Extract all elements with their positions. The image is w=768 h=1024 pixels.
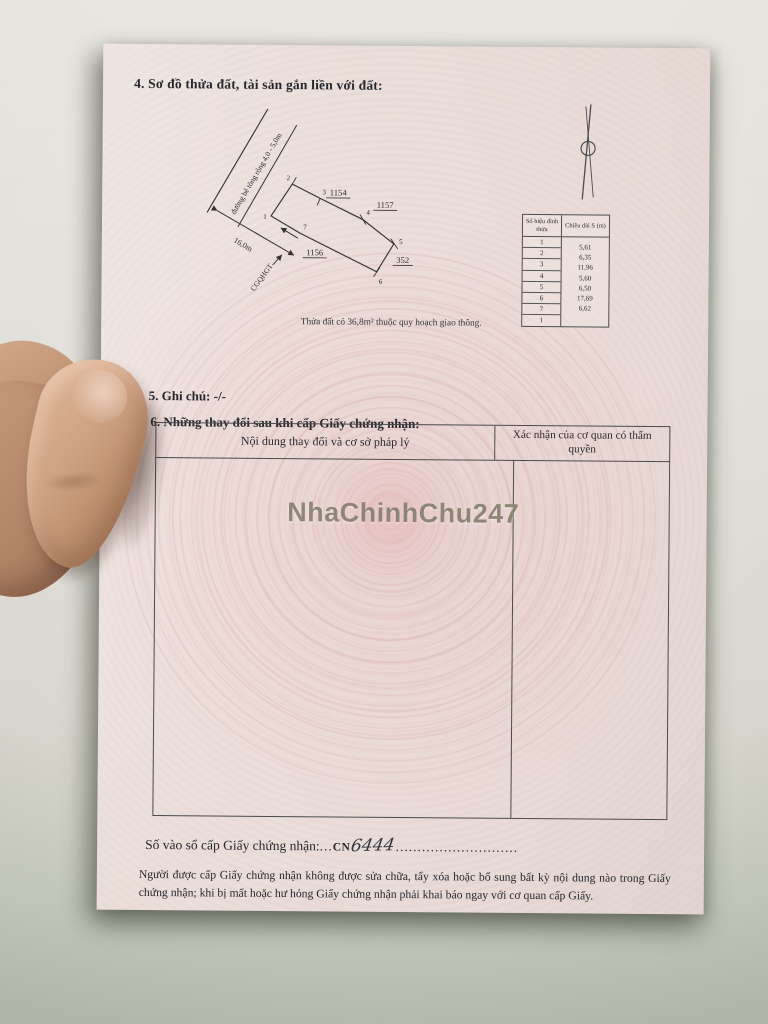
changes-col1-header: Nội dung thay đổi và cơ sở pháp lý [156, 423, 495, 460]
road-label: đường bê tông rộng 4,0 - 5,0m [229, 131, 284, 216]
registry-handwritten-number: 6444 [350, 835, 396, 856]
planning-boundary-arrow [273, 255, 282, 265]
certificate-page: 4. Sơ đồ thửa đất, tài sản gắn liền với … [97, 44, 711, 915]
registry-prefix: CN [333, 841, 351, 853]
length-cell: 5,60 [562, 273, 609, 284]
changes-table: Nội dung thay đổi và cơ sở pháp lý Xác n… [152, 422, 670, 820]
vertex-4: 4 [366, 209, 370, 217]
vertex-1: 1 [263, 213, 267, 221]
footer-warning-text: Người được cấp Giấy chứng nhận không đượ… [139, 866, 671, 906]
vertex-7: 7 [303, 223, 307, 231]
dimension-label: 16,0m [232, 236, 255, 254]
dimension-line [217, 211, 294, 256]
vertex-cell: 3 [523, 259, 561, 270]
plot-diagram: đường bê tông rộng 4,0 - 5,0m 16,0m CGQH… [171, 106, 533, 344]
vertex-cell: 6 [522, 293, 560, 304]
vertex-6: 6 [379, 278, 383, 286]
registry-dots: ... [320, 838, 333, 853]
vertex-5: 5 [399, 238, 403, 246]
length-cell: 17,69 [561, 293, 608, 304]
section4-title: 4. Sơ đồ thửa đất, tài sản gắn liền với … [134, 76, 383, 94]
planning-boundary-label: CGQHGT [249, 262, 275, 293]
vertex-cell: 7 [522, 304, 560, 315]
registry-number-line: Số vào sổ cấp Giấy chứng nhận:...CN6444.… [145, 834, 518, 857]
vertex-3: 3 [322, 188, 326, 196]
vertex-2: 2 [287, 174, 291, 182]
registry-label: Số vào sổ cấp Giấy chứng nhận: [145, 837, 320, 853]
length-cell: 5,61 [562, 242, 609, 253]
parcel-label-352: 352 [396, 255, 409, 265]
vertex-table-col1-header: Số hiệu đỉnh thửa [523, 215, 561, 237]
watermark: NhaChinhChu247 [100, 496, 707, 532]
vertex-cell: 2 [523, 248, 561, 259]
vertex-cell: 1 [523, 237, 561, 248]
changes-col2-header: Xác nhận của cơ quan có thẩm quyền [495, 426, 669, 461]
vertex-cell: 5 [522, 282, 560, 293]
access-arrow [281, 228, 298, 238]
vertex-table-col2-header: Chiều dài S (m) [562, 215, 609, 237]
length-cell: 6,35 [562, 252, 609, 263]
parcel-label-1157: 1157 [377, 200, 395, 210]
registry-trailing-dots: ............................ [396, 839, 519, 855]
parcel-label-1154: 1154 [330, 187, 348, 197]
parcel-label-1156: 1156 [306, 247, 324, 257]
vertex-length-table: Số hiệu đỉnh thửa 1 2 3 4 5 6 7 1 Chiều … [521, 214, 610, 327]
length-cell: 6,50 [561, 283, 608, 294]
length-cell: 6,62 [561, 303, 608, 314]
vertex-cell: 4 [523, 270, 561, 281]
north-arrow-icon [574, 102, 605, 202]
length-cell: 11,96 [562, 263, 609, 274]
